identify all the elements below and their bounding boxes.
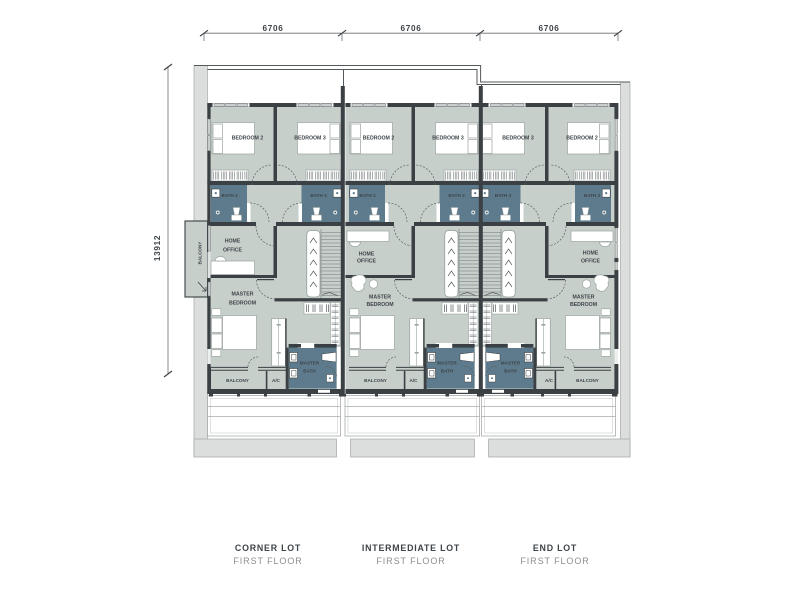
- svg-text:BEDROOM 3: BEDROOM 3: [294, 136, 326, 142]
- svg-text:INTERMEDIATE LOT: INTERMEDIATE LOT: [362, 543, 460, 553]
- svg-text:BATH: BATH: [441, 369, 454, 374]
- svg-text:BALCONY: BALCONY: [364, 378, 387, 383]
- svg-text:MASTER: MASTER: [501, 361, 521, 366]
- svg-text:FIRST FLOOR: FIRST FLOOR: [233, 556, 302, 566]
- svg-text:A/C: A/C: [272, 378, 281, 383]
- svg-text:BATH 2: BATH 2: [221, 193, 238, 198]
- svg-text:MASTER: MASTER: [369, 295, 391, 301]
- svg-text:BATH: BATH: [303, 369, 316, 374]
- svg-text:BEDROOM: BEDROOM: [229, 301, 256, 307]
- svg-text:FIRST FLOOR: FIRST FLOOR: [376, 556, 445, 566]
- svg-text:BALCONY: BALCONY: [198, 242, 203, 265]
- svg-text:BEDROOM 2: BEDROOM 2: [566, 136, 598, 142]
- svg-text:HOME: HOME: [225, 239, 241, 245]
- svg-text:OFFICE: OFFICE: [223, 248, 243, 254]
- svg-text:BALCONY: BALCONY: [576, 378, 599, 383]
- svg-text:BEDROOM 2: BEDROOM 2: [232, 136, 264, 142]
- svg-text:END LOT: END LOT: [533, 543, 577, 553]
- svg-text:OFFICE: OFFICE: [357, 259, 377, 265]
- svg-text:13912: 13912: [153, 235, 162, 261]
- svg-text:FIRST FLOOR: FIRST FLOOR: [520, 556, 589, 566]
- svg-text:BATH: BATH: [504, 369, 517, 374]
- svg-text:BEDROOM 2: BEDROOM 2: [363, 136, 395, 142]
- svg-text:HOME: HOME: [583, 251, 599, 257]
- svg-text:BEDROOM 3: BEDROOM 3: [502, 136, 534, 142]
- svg-text:HOME: HOME: [359, 252, 375, 258]
- svg-text:6706: 6706: [262, 24, 283, 33]
- svg-text:BEDROOM: BEDROOM: [570, 302, 597, 308]
- svg-text:OFFICE: OFFICE: [581, 259, 601, 265]
- svg-text:BATH 3: BATH 3: [310, 193, 327, 198]
- svg-text:6706: 6706: [538, 24, 559, 33]
- svg-text:6706: 6706: [400, 24, 421, 33]
- svg-text:A/C: A/C: [545, 378, 554, 383]
- svg-text:BEDROOM: BEDROOM: [366, 302, 393, 308]
- svg-text:BATH 2: BATH 2: [584, 193, 601, 198]
- svg-text:CORNER LOT: CORNER LOT: [235, 543, 301, 553]
- svg-text:BALCONY: BALCONY: [226, 378, 249, 383]
- svg-text:BATH 3: BATH 3: [495, 193, 512, 198]
- svg-text:BATH 2: BATH 2: [359, 193, 376, 198]
- svg-text:BEDROOM 3: BEDROOM 3: [432, 136, 464, 142]
- svg-text:A/C: A/C: [410, 378, 419, 383]
- svg-text:MASTER: MASTER: [573, 295, 595, 301]
- svg-text:MASTER: MASTER: [232, 292, 254, 298]
- svg-text:BATH 3: BATH 3: [448, 193, 465, 198]
- svg-text:MASTER: MASTER: [437, 361, 457, 366]
- svg-text:MASTER: MASTER: [300, 361, 320, 366]
